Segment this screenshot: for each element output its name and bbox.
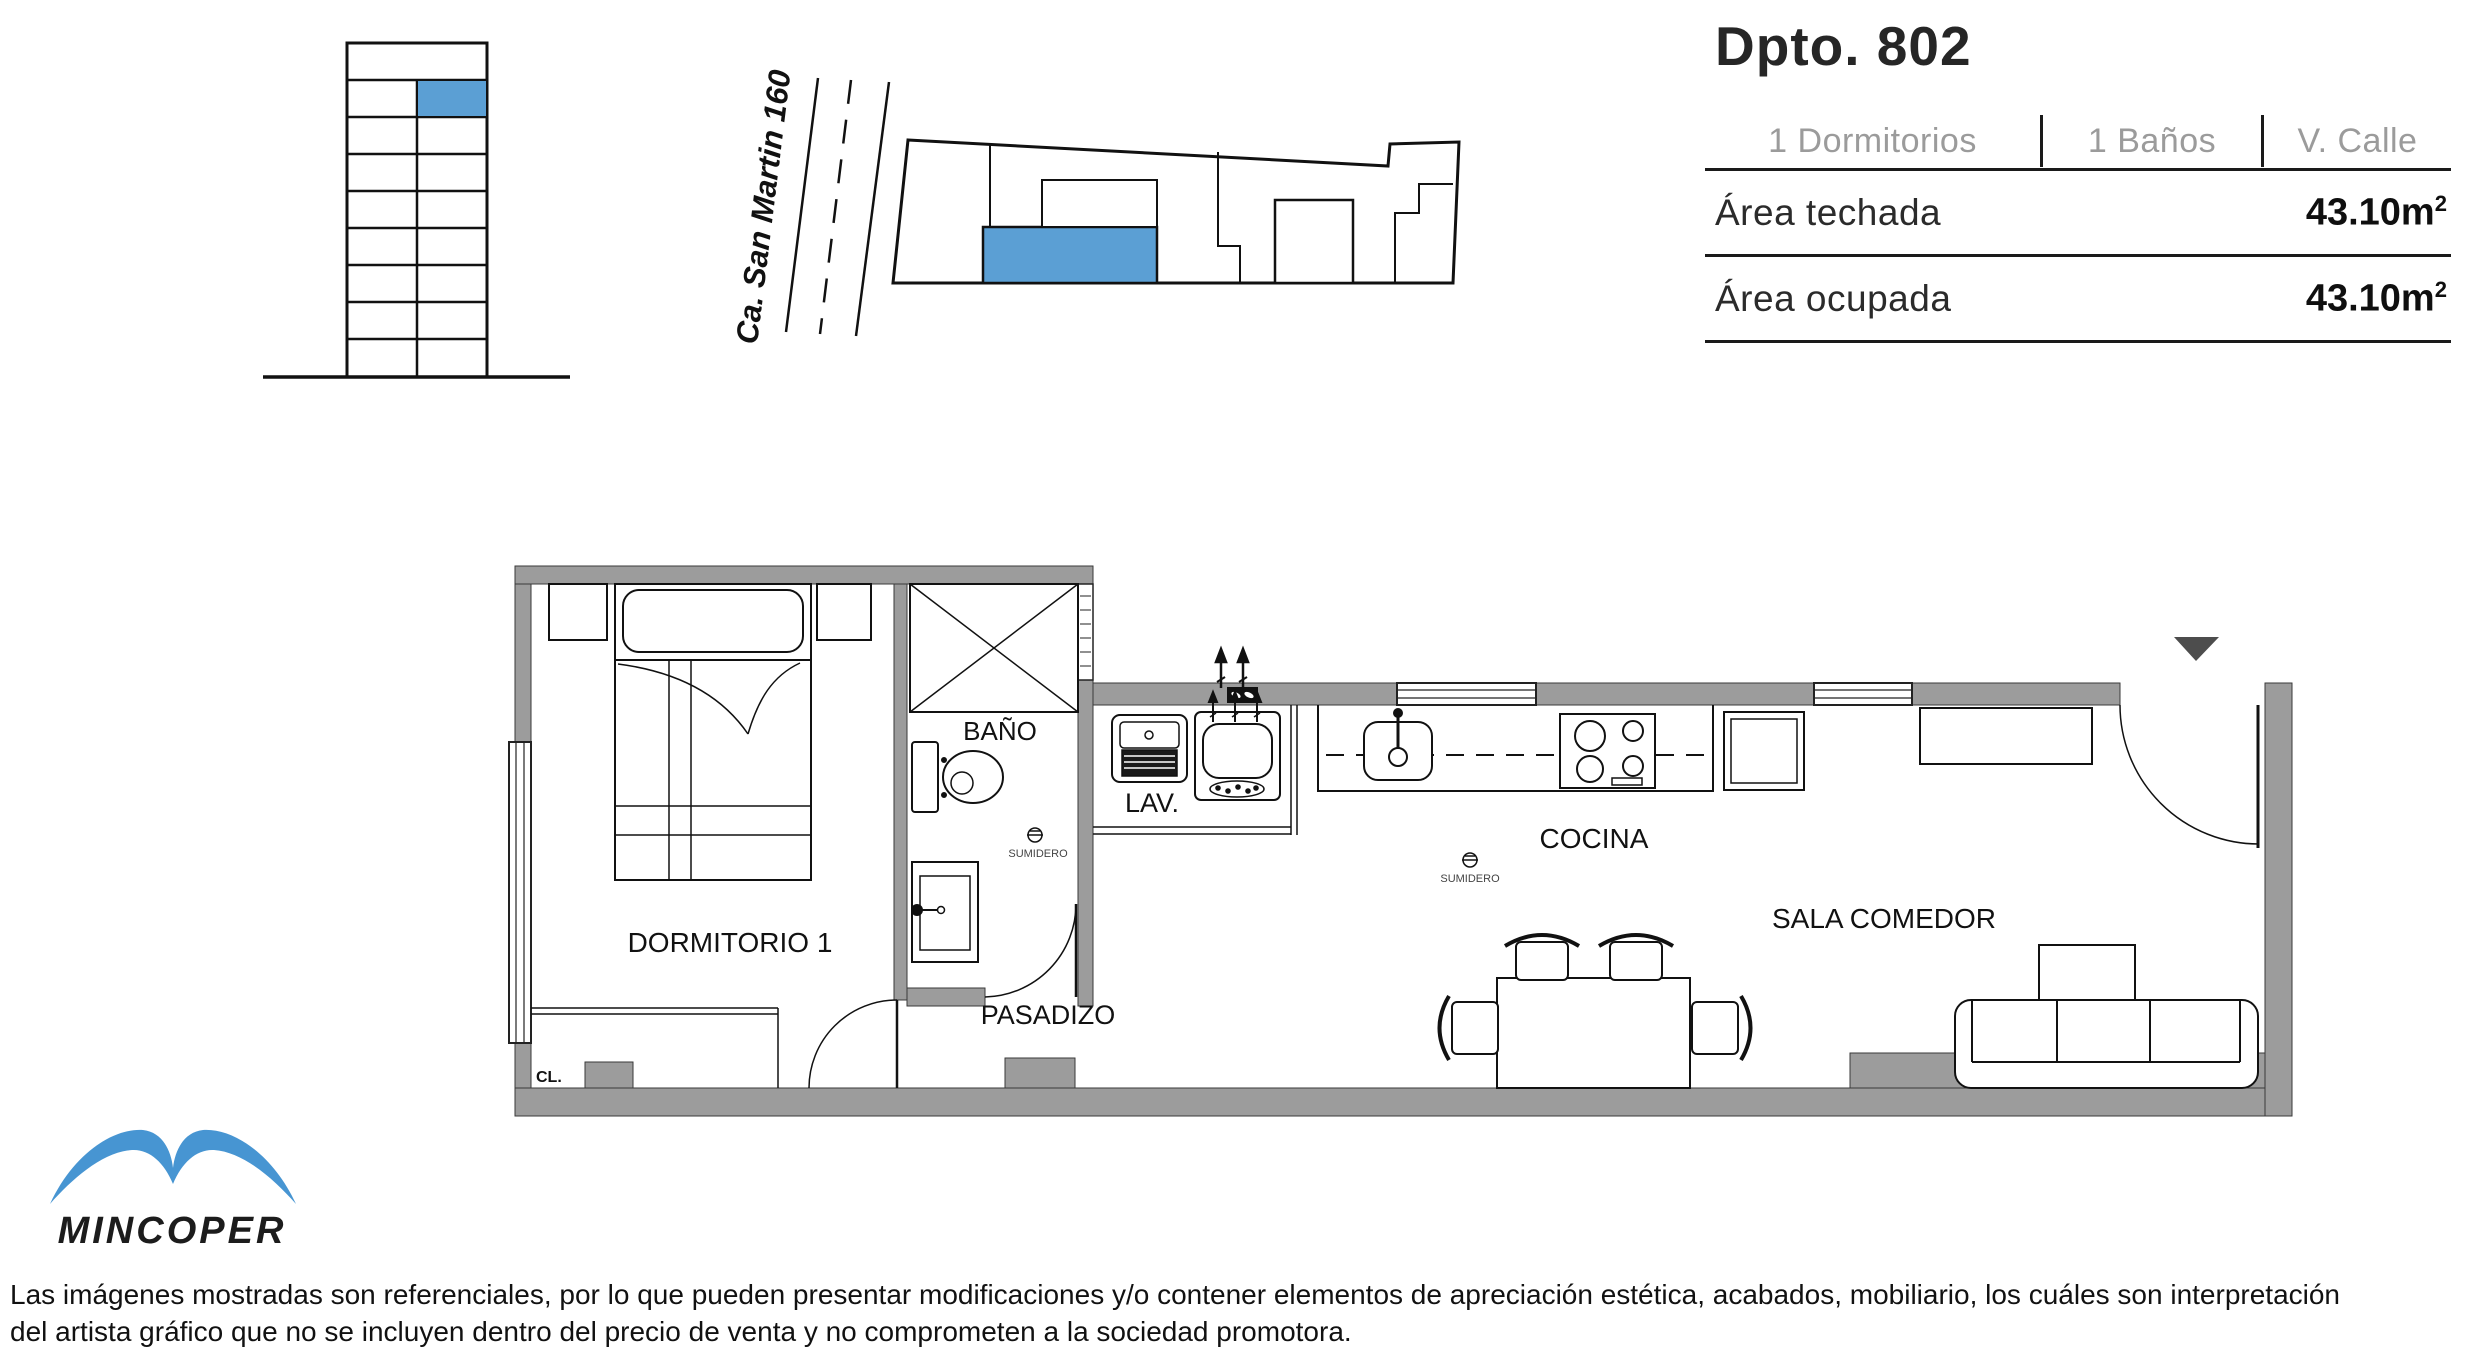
shower bbox=[910, 584, 1078, 712]
bathroom-vanity bbox=[912, 862, 978, 962]
spec-bedrooms: 1 Dormitorios bbox=[1705, 115, 2040, 167]
label-sumidero-bano: SUMIDERO bbox=[1008, 848, 1068, 860]
area-label: Área ocupada bbox=[1715, 278, 1951, 320]
dining-table bbox=[1497, 978, 1690, 1088]
street-center-dashed-line bbox=[820, 80, 851, 334]
laundry-sink bbox=[1112, 715, 1187, 782]
spec-bathrooms: 1 Baños bbox=[2040, 115, 2261, 167]
refrigerator bbox=[1724, 712, 1804, 790]
room-label-dormitorio: DORMITORIO 1 bbox=[628, 927, 833, 958]
disclaimer-line-2: del artista gráfico que no se incluyen d… bbox=[10, 1313, 2476, 1350]
bathroom-door bbox=[985, 904, 1076, 997]
entrance-arrow-marker bbox=[2174, 637, 2219, 661]
area-label: Área techada bbox=[1715, 192, 1941, 234]
bedroom-window bbox=[509, 742, 531, 1043]
nightstand bbox=[549, 584, 607, 640]
drain-symbol-kitchen bbox=[1462, 853, 1478, 867]
site-map: Ca. San Martin 160 bbox=[729, 68, 1459, 346]
console-table bbox=[1920, 708, 2092, 764]
dining-chair bbox=[1599, 935, 1673, 980]
site-footprint-outline bbox=[893, 140, 1459, 283]
drain-symbol-bathroom bbox=[1027, 828, 1043, 842]
logo-wordmark: MINCOPER bbox=[58, 1210, 287, 1252]
bed-headboard bbox=[623, 590, 803, 652]
kitchen-window bbox=[1397, 683, 1536, 705]
logo-m-left-swoosh bbox=[50, 1130, 173, 1204]
nightstand bbox=[817, 584, 871, 640]
logo-mark: MINCOPER bbox=[50, 1130, 296, 1252]
room-label-sala: SALA COMEDOR bbox=[1772, 903, 1996, 934]
kitchen-sink bbox=[1364, 709, 1432, 780]
wall-pilaster bbox=[585, 1062, 633, 1088]
disclaimer-text: Las imágenes mostradas son referenciales… bbox=[10, 1276, 2476, 1350]
dining-chair bbox=[1440, 996, 1499, 1060]
stove bbox=[1560, 714, 1655, 788]
bed bbox=[615, 584, 811, 880]
living-room bbox=[1920, 705, 2259, 1088]
floorplan-sheet: { "header": { "title": "Dpto. 802", "spe… bbox=[0, 0, 2484, 1354]
street-label: Ca. San Martin 160 bbox=[729, 68, 797, 346]
dining-set bbox=[1440, 935, 1751, 1088]
bedroom bbox=[531, 584, 897, 1088]
site-courtyard bbox=[1275, 200, 1353, 283]
bedroom-door bbox=[809, 1000, 897, 1088]
room-label-lav: LAV. bbox=[1125, 788, 1179, 818]
site-highlighted-unit bbox=[983, 227, 1157, 283]
dining-chair bbox=[1692, 996, 1751, 1060]
entrance-door bbox=[2120, 705, 2259, 848]
room-label-cocina: COCINA bbox=[1540, 823, 1649, 854]
wall-pilaster bbox=[1005, 1058, 1075, 1088]
room-label-pasadizo: PASADIZO bbox=[981, 1000, 1116, 1030]
dining-chair bbox=[1505, 935, 1579, 980]
spec-view: V. Calle bbox=[2261, 115, 2451, 167]
closet bbox=[531, 1008, 778, 1088]
washing-machine bbox=[1195, 712, 1280, 800]
building-elevation-diagram bbox=[263, 43, 570, 377]
toilet bbox=[912, 742, 1003, 812]
elevation-highlighted-unit bbox=[417, 80, 487, 117]
unit-info-panel: Dpto. 802 1 Dormitorios 1 Baños V. Calle… bbox=[1705, 14, 2451, 343]
logo-m-right-swoosh bbox=[173, 1130, 296, 1204]
area-row-techada: Área techada 43.10m2 bbox=[1705, 171, 2451, 257]
label-sumidero-cocina: SUMIDERO bbox=[1440, 873, 1500, 885]
area-row-ocupada: Área ocupada 43.10m2 bbox=[1705, 257, 2451, 343]
room-label-closet: CL. bbox=[536, 1069, 562, 1086]
area-value: 43.10m2 bbox=[2306, 191, 2447, 235]
disclaimer-line-1: Las imágenes mostradas son referenciales… bbox=[10, 1276, 2476, 1313]
living-room-window bbox=[1814, 683, 1912, 705]
area-value: 43.10m2 bbox=[2306, 277, 2447, 321]
unit-spec-row: 1 Dormitorios 1 Baños V. Calle bbox=[1705, 114, 2451, 168]
bathroom-vent-window bbox=[1078, 584, 1093, 680]
floor-plan: DORMITORIO 1 CL. bbox=[509, 566, 2292, 1116]
room-label-bano: BAÑO bbox=[963, 716, 1037, 746]
unit-title: Dpto. 802 bbox=[1715, 14, 2451, 78]
street-edge-line bbox=[856, 82, 889, 336]
bathroom bbox=[910, 584, 1078, 997]
laundry-area bbox=[1093, 692, 1297, 835]
sofa bbox=[1955, 1000, 2258, 1088]
